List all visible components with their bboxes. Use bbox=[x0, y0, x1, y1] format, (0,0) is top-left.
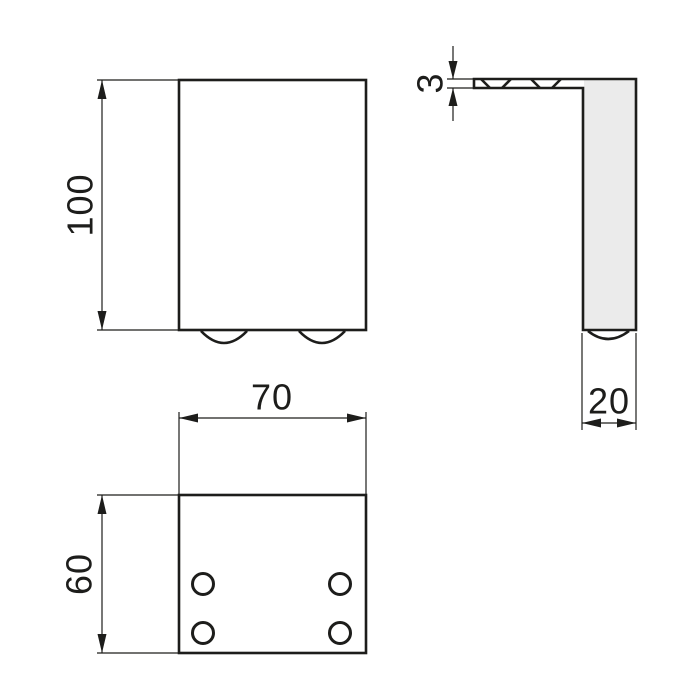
dimension-label-depth: 60 bbox=[59, 553, 100, 595]
side-dimension-20: 20 bbox=[582, 333, 636, 430]
dimension-label-width: 70 bbox=[251, 377, 293, 418]
side-foot-arc bbox=[588, 331, 629, 339]
arrowhead-down-icon bbox=[98, 634, 107, 653]
front-view-body bbox=[179, 80, 366, 330]
screw-hole bbox=[330, 574, 351, 595]
countersink-edge bbox=[531, 79, 540, 88]
arrowhead-up-icon bbox=[98, 495, 107, 514]
arrowhead-down-icon bbox=[98, 311, 107, 330]
front-view: 100 bbox=[60, 80, 367, 343]
arrowhead-left-icon bbox=[179, 414, 198, 423]
side-view: 3 20 bbox=[410, 46, 637, 430]
screw-hole bbox=[193, 623, 214, 644]
side-view-countersink-holes bbox=[481, 79, 561, 88]
technical-drawing-page: 100 bbox=[0, 0, 700, 700]
front-dimension-100: 100 bbox=[60, 80, 107, 330]
side-dimension-3: 3 bbox=[410, 46, 474, 121]
dimension-label-thickness: 3 bbox=[410, 72, 451, 93]
bottom-dimension-60: 60 bbox=[59, 495, 180, 653]
screw-hole bbox=[193, 574, 214, 595]
countersink-edge bbox=[481, 79, 490, 88]
bottom-view: 70 60 bbox=[59, 377, 367, 654]
front-foot-arc-left bbox=[201, 331, 247, 343]
bottom-view-holes bbox=[193, 574, 351, 644]
arrowhead-right-icon bbox=[347, 414, 366, 423]
countersink-edge bbox=[552, 79, 561, 88]
screw-hole bbox=[330, 623, 351, 644]
dimension-label-height: 100 bbox=[60, 173, 101, 236]
bottom-dimension-70: 70 bbox=[179, 377, 366, 495]
arrowhead-up-icon bbox=[98, 80, 107, 99]
countersink-edge bbox=[502, 79, 511, 88]
side-view-leg-fill bbox=[584, 80, 636, 330]
dimension-label-depth: 20 bbox=[588, 381, 630, 422]
drawing-svg: 100 bbox=[0, 0, 700, 700]
front-foot-arc-right bbox=[299, 331, 345, 343]
